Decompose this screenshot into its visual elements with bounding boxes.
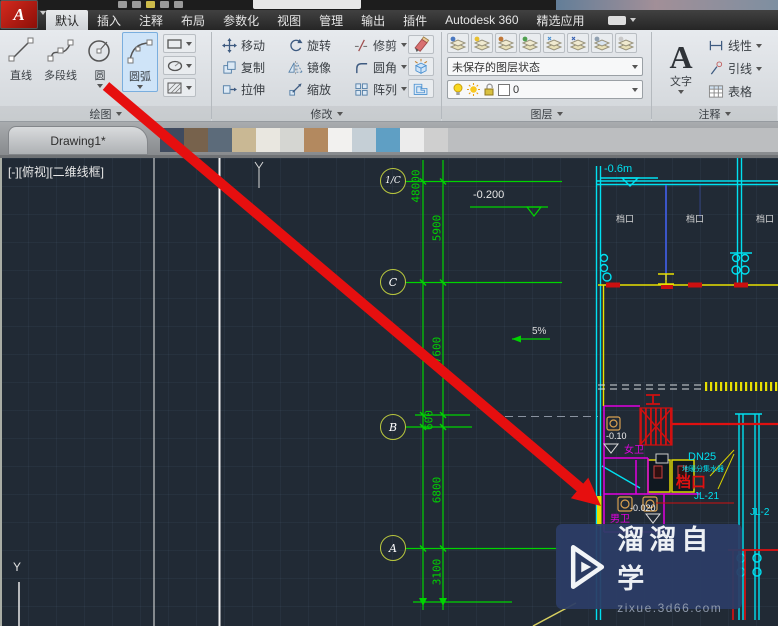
layer-off-button[interactable] xyxy=(567,33,589,53)
dim-3100: 3100 xyxy=(432,559,443,586)
chevron-down-icon xyxy=(337,112,343,116)
draw-hatch-button[interactable] xyxy=(163,78,196,97)
stretch-icon xyxy=(222,82,237,97)
unlock-icon xyxy=(483,83,495,96)
elevation-women: -0.10 xyxy=(606,432,627,441)
chevron-down-icon xyxy=(401,65,407,69)
trim-icon xyxy=(354,38,369,53)
layer-properties-icon xyxy=(449,35,467,51)
chevron-down-icon xyxy=(632,65,638,69)
layer-unisolate-icon xyxy=(521,35,539,51)
offset-icon xyxy=(411,80,431,97)
grid-bubble-b: B xyxy=(380,414,406,440)
chevron-down-icon xyxy=(186,42,192,46)
chevron-down-icon xyxy=(186,86,192,90)
dim-6800: 6800 xyxy=(432,477,443,504)
circle-icon xyxy=(84,34,116,66)
explode-icon xyxy=(411,58,431,75)
panel-label-annotation[interactable]: 注释 xyxy=(652,106,777,121)
layer-off-icon xyxy=(569,35,587,51)
fillet-icon xyxy=(354,60,369,75)
table-button[interactable]: 表格 xyxy=(708,80,762,103)
arc-icon xyxy=(124,35,156,67)
tab-home[interactable]: 默认 xyxy=(46,10,88,30)
modify-move-button[interactable]: 移动 xyxy=(222,37,288,54)
erase-button[interactable] xyxy=(408,35,434,54)
dim-48000: 48000 xyxy=(411,169,422,202)
ribbon: 直线 多段线 圆 圆弧 xyxy=(0,30,778,122)
linear-dimension-icon xyxy=(708,38,724,53)
color-chip-icon xyxy=(498,84,510,96)
draw-ellipse-button[interactable] xyxy=(163,56,196,75)
titlebar xyxy=(0,0,778,10)
ribbon-tab-bar: 默认 插入 注释 布局 参数化 视图 管理 输出 插件 Autodesk 360… xyxy=(0,10,778,30)
dim-600: 600 xyxy=(424,410,435,430)
chevron-down-icon xyxy=(756,44,762,48)
panel-modify: 移动 旋转 修剪 复制 镜像 xyxy=(212,30,442,121)
app-menu-caret-icon xyxy=(40,11,46,15)
tab-manage[interactable]: 管理 xyxy=(310,10,352,30)
tab-annotate[interactable]: 注释 xyxy=(130,10,172,30)
layer-isolate-button[interactable] xyxy=(495,33,517,53)
dim-7600: 7600 xyxy=(432,337,443,364)
polyline-icon xyxy=(45,34,77,66)
ribbon-minimize-icon xyxy=(608,16,626,25)
dn25-label: DN25 xyxy=(688,452,716,463)
modify-rotate-button[interactable]: 旋转 xyxy=(288,37,354,54)
ribbon-minimize-button[interactable] xyxy=(608,10,636,30)
chevron-down-icon xyxy=(116,112,122,116)
women-toilet-label: 女卫 xyxy=(624,446,644,456)
slope-label: 5% xyxy=(532,327,546,337)
rotate-icon xyxy=(288,38,303,53)
draw-polyline-button[interactable]: 多段线 xyxy=(43,32,78,85)
chevron-down-icon xyxy=(756,67,762,71)
floor-heating-label: 地暖分集水器 xyxy=(682,466,724,473)
dim-5900: 5900 xyxy=(432,215,443,242)
scale-icon xyxy=(288,82,303,97)
tab-view[interactable]: 视图 xyxy=(268,10,310,30)
linear-dimension-button[interactable]: 线性 xyxy=(708,34,762,57)
tab-parametric[interactable]: 参数化 xyxy=(214,10,268,30)
ellipse-icon xyxy=(167,60,183,72)
stall-label-2: 档口 xyxy=(686,215,704,224)
modify-scale-button[interactable]: 缩放 xyxy=(288,81,354,98)
text-button[interactable]: A 文字 xyxy=(660,33,702,103)
panel-label-modify[interactable]: 修改 xyxy=(212,106,441,121)
layer-match-button[interactable] xyxy=(591,33,613,53)
drawing-canvas[interactable]: [-][俯视][二维线框] 1/C C B A 48000 5900 7600 … xyxy=(0,158,778,626)
quick-access-icon[interactable] xyxy=(146,1,155,8)
offset-button[interactable] xyxy=(408,79,434,98)
panel-layers: 未保存的图层状态 0 图层 xyxy=(442,30,652,121)
panel-draw: 直线 多段线 圆 圆弧 xyxy=(0,30,212,121)
layer-unisolate-button[interactable] xyxy=(519,33,541,53)
table-icon xyxy=(708,84,724,99)
panel-annotation: A 文字 线性 引线 表格 注释 xyxy=(652,30,778,121)
tab-plugins[interactable]: 插件 xyxy=(394,10,436,30)
layer-walk-icon xyxy=(617,35,635,51)
viewport-controls[interactable]: [-][俯视][二维线框] xyxy=(8,166,104,178)
chevron-down-icon xyxy=(678,90,684,94)
panel-label-draw[interactable]: 绘图 xyxy=(0,106,211,121)
chevron-down-icon xyxy=(632,88,638,92)
sun-icon xyxy=(467,83,480,96)
draw-circle-button[interactable]: 圆 xyxy=(83,32,117,90)
watermark-site: zixue.3d66.com xyxy=(617,601,732,615)
eraser-icon xyxy=(411,36,431,53)
move-icon xyxy=(222,38,237,53)
stall-label-3: 档口 xyxy=(756,215,774,224)
modify-stretch-button[interactable]: 拉伸 xyxy=(222,81,288,98)
jl2-label: JL-2 xyxy=(750,508,769,518)
workspace-dropdown[interactable] xyxy=(253,0,361,9)
grid-bubble-a: A xyxy=(380,535,406,561)
watermark-title: 溜溜自学 xyxy=(617,518,732,596)
layer-match-icon xyxy=(593,35,611,51)
modify-copy-button[interactable]: 复制 xyxy=(222,59,288,76)
layer-state-dropdown[interactable]: 未保存的图层状态 xyxy=(447,57,643,76)
hatch-icon xyxy=(167,82,183,94)
chevron-down-icon xyxy=(725,112,731,116)
modify-mirror-button[interactable]: 镜像 xyxy=(288,59,354,76)
tab-insert[interactable]: 插入 xyxy=(88,10,130,30)
layer-walk-button[interactable] xyxy=(615,33,637,53)
layer-select-dropdown[interactable]: 0 xyxy=(447,80,643,99)
watermark-play-logo-icon xyxy=(566,539,607,595)
copy-icon xyxy=(222,60,237,75)
array-icon xyxy=(354,82,369,97)
tab-featured-apps[interactable]: 精选应用 xyxy=(528,10,594,30)
tab-autodesk-360[interactable]: Autodesk 360 xyxy=(436,10,527,30)
tab-layout[interactable]: 布局 xyxy=(172,10,214,30)
line-icon xyxy=(5,34,37,66)
tab-output[interactable]: 输出 xyxy=(352,10,394,30)
swatch-strip xyxy=(160,128,778,152)
app-menu-button[interactable]: A xyxy=(0,0,38,29)
elevation-0200: -0.200 xyxy=(473,190,504,201)
file-tab-drawing1[interactable]: Drawing1* xyxy=(8,126,148,155)
quick-access-icon[interactable] xyxy=(132,1,141,8)
stall-red-label: 档口 xyxy=(676,475,706,490)
file-tab-bar: Drawing1* xyxy=(0,122,778,158)
quick-access-icon[interactable] xyxy=(118,1,127,8)
chevron-down-icon xyxy=(630,18,636,22)
elevation-men: -0.020 xyxy=(630,504,656,513)
jl21-label: JL-21 xyxy=(694,492,719,502)
elevation-06m: -0.6m xyxy=(604,164,632,175)
grid-bubble-c: C xyxy=(380,269,406,295)
grid-bubble-1c: 1/C xyxy=(380,168,406,194)
explode-button[interactable] xyxy=(408,57,434,76)
layer-state-icon xyxy=(473,35,491,51)
rectangle-icon xyxy=(167,38,183,50)
draw-line-button[interactable]: 直线 xyxy=(4,32,38,85)
chevron-down-icon xyxy=(97,84,103,88)
layer-freeze-button[interactable] xyxy=(543,33,565,53)
chevron-down-icon xyxy=(186,64,192,68)
layer-properties-button[interactable] xyxy=(447,33,469,53)
ucs-y-axis-label: Y xyxy=(13,561,21,573)
leader-button[interactable]: 引线 xyxy=(708,57,762,80)
text-a-icon: A xyxy=(669,42,692,72)
autocad-window: 默认 插入 注释 布局 参数化 视图 管理 输出 插件 Autodesk 360… xyxy=(0,0,778,626)
draw-arc-button[interactable]: 圆弧 xyxy=(122,32,158,92)
leader-icon xyxy=(708,61,724,76)
layer-freeze-icon xyxy=(545,35,563,51)
mirror-icon xyxy=(288,60,303,75)
draw-rectangle-button[interactable] xyxy=(163,34,196,53)
layer-state-button[interactable] xyxy=(471,33,493,53)
chevron-down-icon xyxy=(401,87,407,91)
chevron-down-icon xyxy=(137,85,143,89)
bulb-icon xyxy=(452,83,464,96)
quick-access-icon[interactable] xyxy=(174,1,183,8)
stall-label-1: 档口 xyxy=(616,215,634,224)
chevron-down-icon xyxy=(557,112,563,116)
layer-isolate-icon xyxy=(497,35,515,51)
quick-access-icon[interactable] xyxy=(160,1,169,8)
chevron-down-icon xyxy=(401,43,407,47)
panel-label-layers[interactable]: 图层 xyxy=(442,106,651,121)
watermark: 溜溜自学 zixue.3d66.com xyxy=(556,524,742,609)
